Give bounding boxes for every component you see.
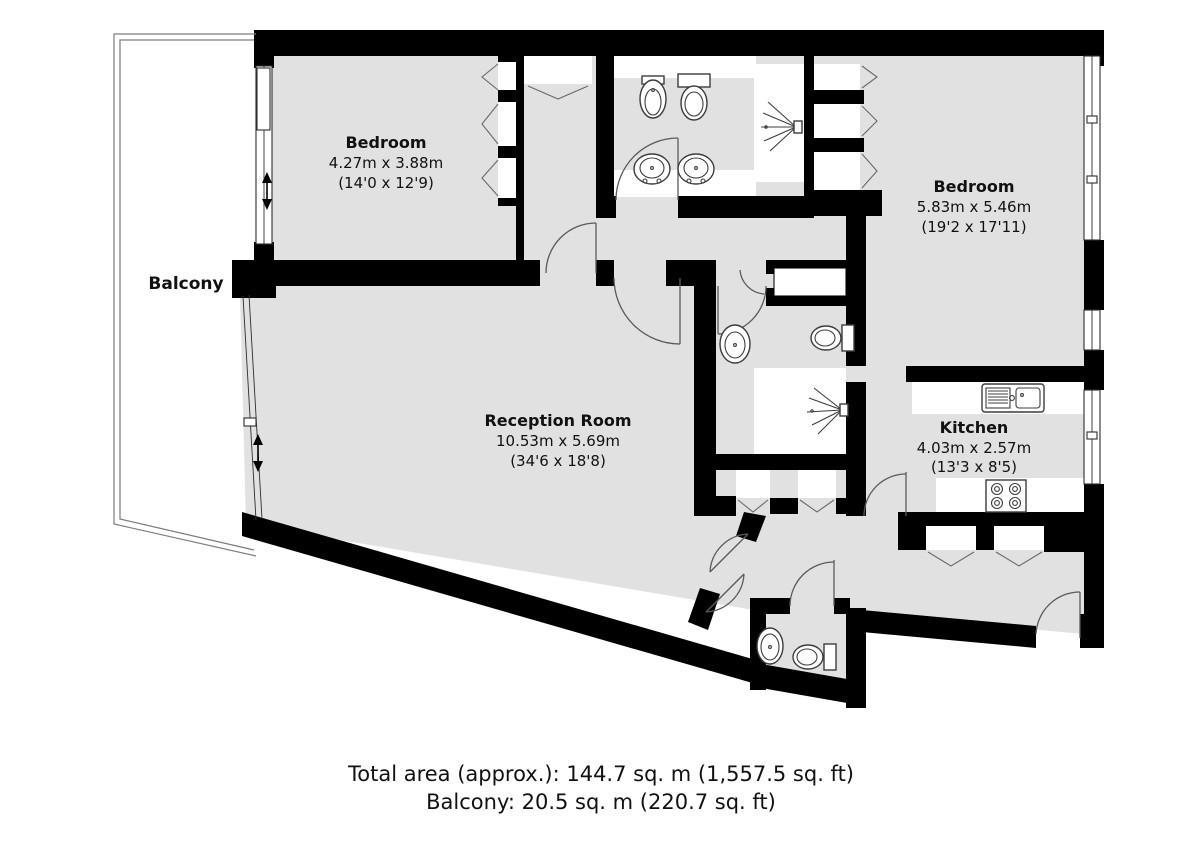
room-name: Bedroom xyxy=(933,177,1014,196)
wardrobe-bay xyxy=(736,470,770,498)
balcony-label: Balcony xyxy=(148,274,223,294)
basin-icon xyxy=(720,325,750,363)
room-dim-imperial: (19'2 x 17'11) xyxy=(921,218,1026,236)
balcony-area-text: Balcony: 20.5 sq. m (220.7 sq. ft) xyxy=(426,790,776,814)
bidet-icon xyxy=(640,76,666,118)
closet-bay xyxy=(926,526,976,550)
total-area-text: Total area (approx.): 144.7 sq. m (1,557… xyxy=(347,762,854,786)
room-name: Kitchen xyxy=(940,418,1009,437)
room-name: Reception Room xyxy=(484,411,631,430)
wardrobe-bay xyxy=(498,62,518,90)
window-icon xyxy=(257,68,270,130)
room-dim-metric: 10.53m x 5.69m xyxy=(496,432,620,450)
ensuite-closet xyxy=(774,268,846,296)
room-dim-metric: 4.03m x 2.57m xyxy=(917,439,1031,457)
toilet-icon xyxy=(793,644,836,670)
room-label-bedroom1: Bedroom 4.27m x 3.88m (14'0 x 12'9) xyxy=(329,133,443,192)
room-name: Bedroom xyxy=(345,133,426,152)
room-label-bedroom2: Bedroom 5.83m x 5.46m (19'2 x 17'11) xyxy=(917,177,1031,236)
wardrobe-bay xyxy=(814,152,860,190)
wardrobe-bay xyxy=(814,64,860,90)
room-dim-imperial: (13'3 x 8'5) xyxy=(931,458,1017,476)
wardrobe-bay xyxy=(498,158,518,198)
wardrobe-bay xyxy=(814,104,860,138)
room-dim-metric: 5.83m x 5.46m xyxy=(917,198,1031,216)
basin-icon xyxy=(678,154,714,184)
wardrobe-bay xyxy=(798,470,836,498)
room-dim-metric: 4.27m x 3.88m xyxy=(329,154,443,172)
wardrobe-bay xyxy=(498,102,518,146)
kitchen-sink-icon xyxy=(982,384,1044,412)
basin-icon xyxy=(757,628,783,664)
toilet-icon xyxy=(811,325,854,351)
floorplan-page: Balcony Bedroom 4.27m x 3.88m (14'0 x 12… xyxy=(0,0,1200,867)
hob-icon xyxy=(986,480,1026,512)
floor-plan: Balcony Bedroom 4.27m x 3.88m (14'0 x 12… xyxy=(0,0,1200,867)
room-dim-imperial: (34'6 x 18'8) xyxy=(510,452,606,470)
room-dim-imperial: (14'0 x 12'9) xyxy=(338,174,434,192)
basin-icon xyxy=(634,154,670,184)
toilet-icon xyxy=(678,74,710,120)
closet-bay xyxy=(994,526,1044,550)
closet-bay xyxy=(524,56,592,84)
